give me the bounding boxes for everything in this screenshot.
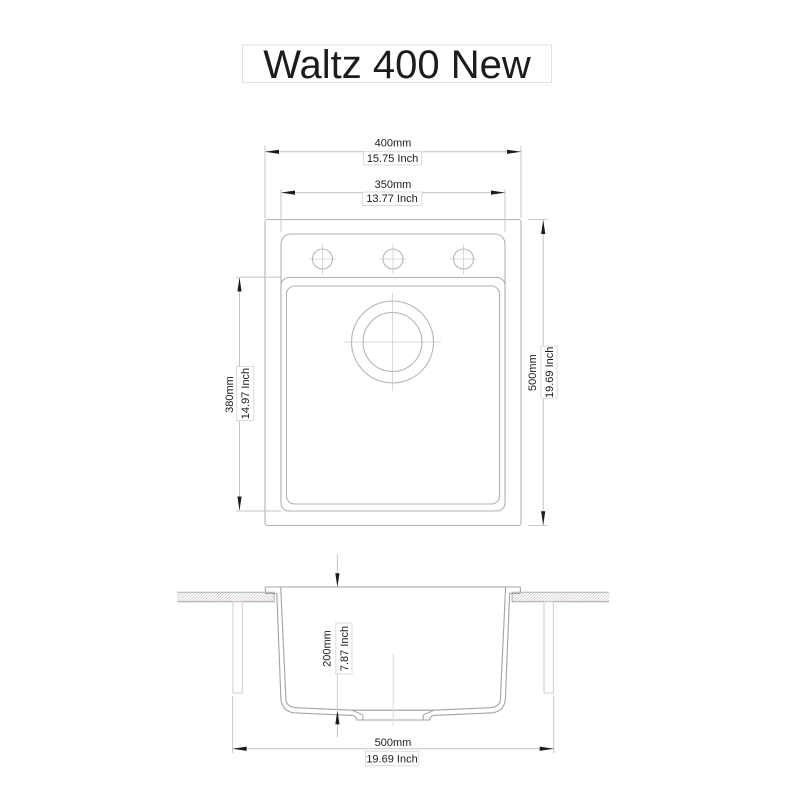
- svg-text:500mm: 500mm: [375, 737, 412, 749]
- svg-text:15.75 Inch: 15.75 Inch: [367, 153, 418, 165]
- svg-text:380mm: 380mm: [224, 376, 236, 413]
- svg-text:7.87 Inch: 7.87 Inch: [339, 626, 351, 671]
- svg-text:14.97 Inch: 14.97 Inch: [240, 368, 252, 419]
- svg-text:200mm: 200mm: [322, 630, 334, 667]
- svg-text:350mm: 350mm: [375, 179, 412, 191]
- svg-text:19.69 Inch: 19.69 Inch: [544, 347, 556, 398]
- svg-text:13.77 Inch: 13.77 Inch: [366, 193, 417, 205]
- svg-text:19.69 Inch: 19.69 Inch: [366, 753, 417, 765]
- svg-text:Waltz 400 New: Waltz 400 New: [263, 43, 531, 87]
- svg-text:400mm: 400mm: [375, 137, 412, 149]
- svg-text:500mm: 500mm: [527, 354, 539, 391]
